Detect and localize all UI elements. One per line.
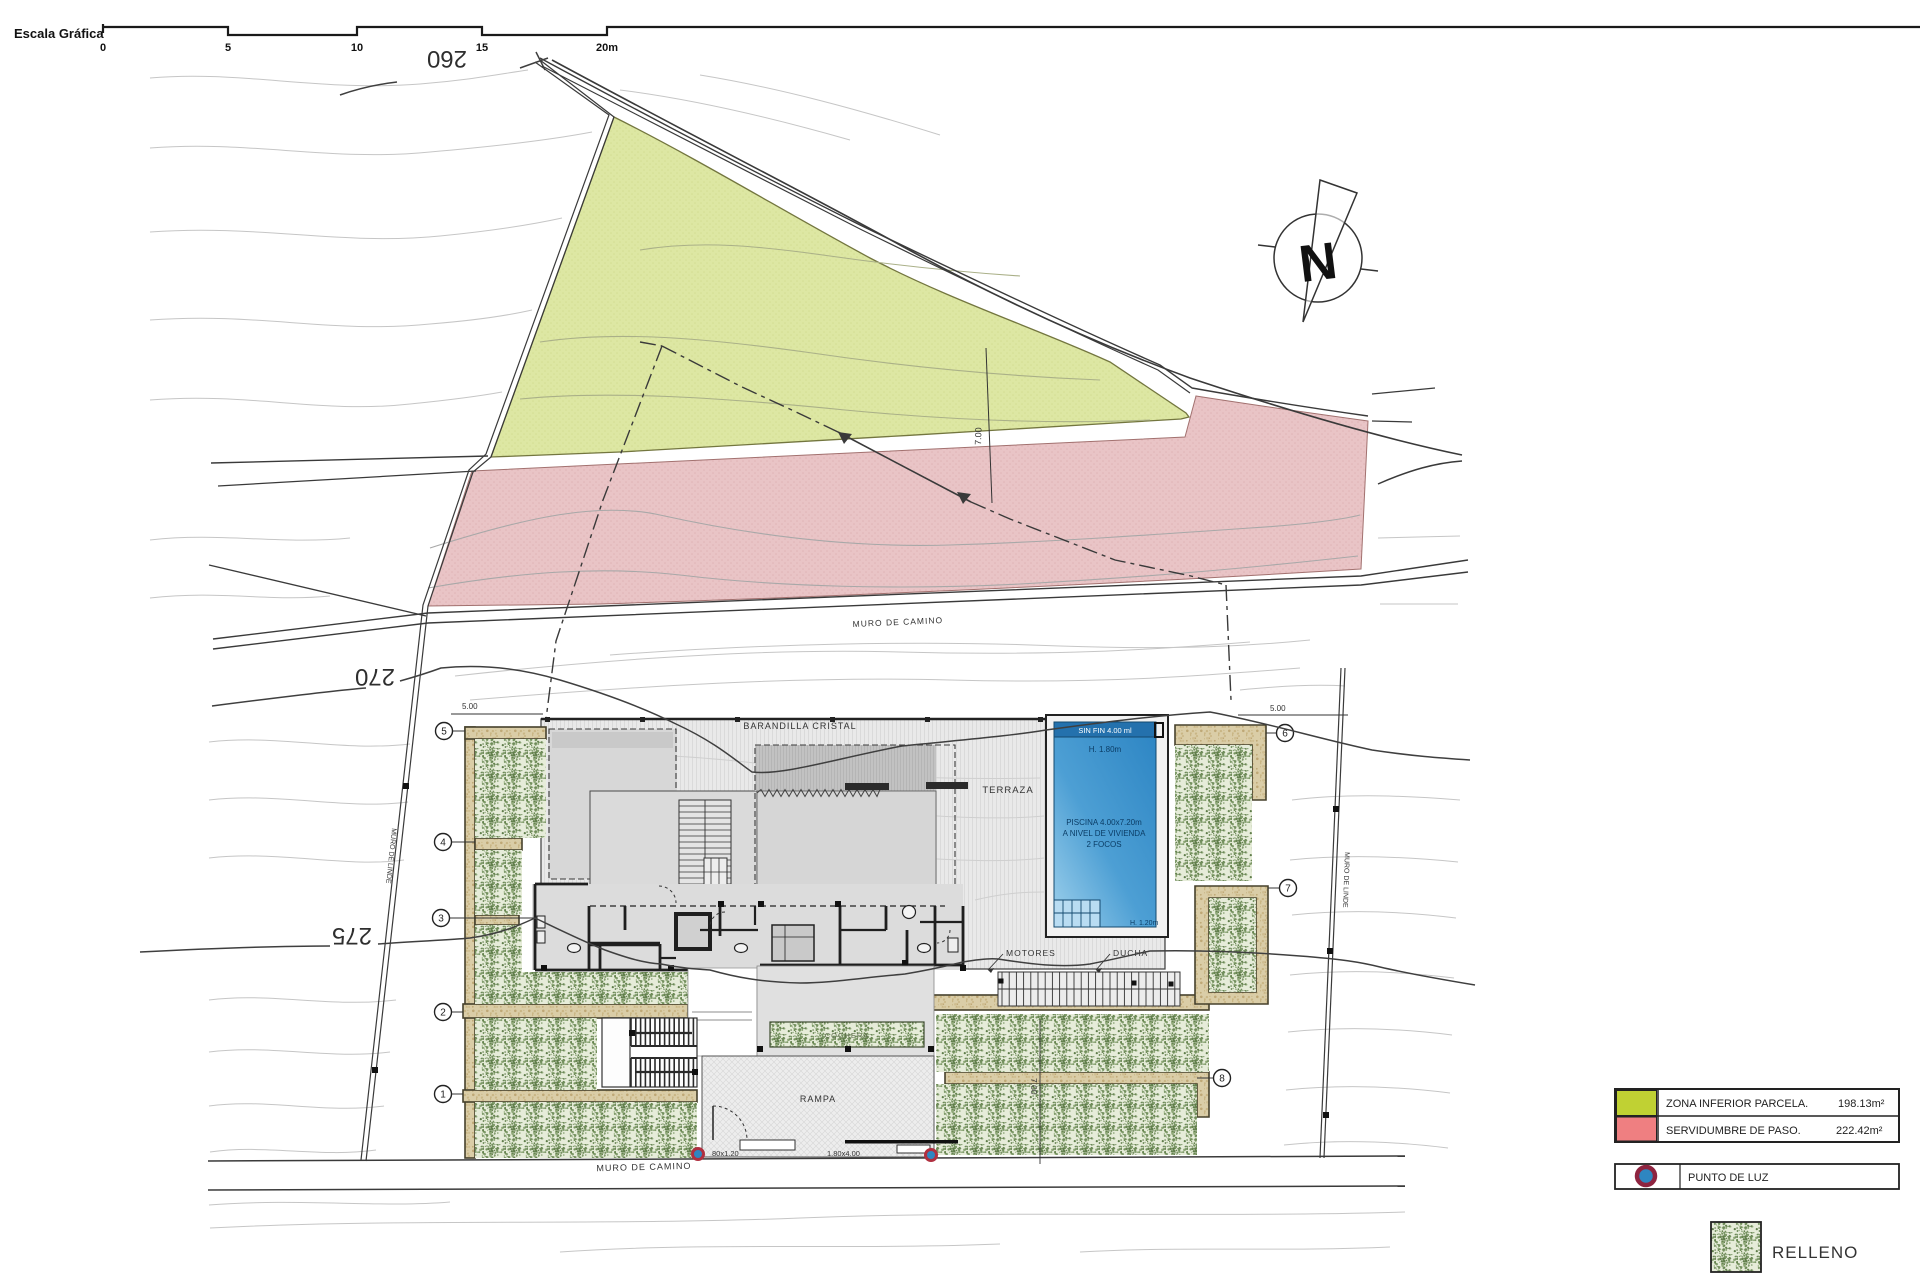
svg-text:COCHERA: COCHERA: [825, 1031, 870, 1040]
svg-text:H. 1.20m: H. 1.20m: [1130, 920, 1159, 927]
svg-text:Escala Gráfica: Escala Gráfica: [14, 26, 104, 41]
svg-text:N: N: [1296, 232, 1340, 294]
svg-text:1.80x4.00: 1.80x4.00: [827, 1149, 860, 1158]
svg-text:198.13m²: 198.13m²: [1838, 1098, 1885, 1110]
svg-text:SERVIDUMBRE DE PASO.: SERVIDUMBRE DE PASO.: [1666, 1125, 1801, 1137]
svg-text:7: 7: [1285, 884, 1291, 895]
svg-text:80x1.20: 80x1.20: [712, 1149, 739, 1158]
svg-text:5.00: 5.00: [462, 702, 478, 711]
svg-text:222.42m²: 222.42m²: [1836, 1125, 1883, 1137]
svg-text:260: 260: [427, 45, 467, 72]
svg-text:0: 0: [100, 42, 106, 54]
svg-text:275: 275: [332, 922, 372, 949]
svg-text:4: 4: [440, 838, 446, 849]
svg-text:MOTORES: MOTORES: [1006, 948, 1056, 958]
svg-text:RELLENO: RELLENO: [1772, 1243, 1858, 1262]
svg-text:2: 2: [440, 1008, 446, 1019]
svg-text:270: 270: [355, 663, 395, 690]
svg-text:BARANDILLA CRISTAL: BARANDILLA CRISTAL: [743, 721, 856, 731]
svg-text:H. 1.80m: H. 1.80m: [1089, 745, 1122, 754]
svg-text:TERRAZA: TERRAZA: [982, 785, 1033, 796]
svg-text:8: 8: [1219, 1074, 1225, 1085]
svg-text:2 FOCOS: 2 FOCOS: [1086, 840, 1121, 849]
svg-text:5: 5: [441, 727, 447, 738]
svg-text:1: 1: [440, 1090, 446, 1101]
svg-text:7.00: 7.00: [973, 427, 984, 445]
svg-text:RAMPA: RAMPA: [800, 1094, 836, 1104]
svg-text:SIN FIN 4.00 ml: SIN FIN 4.00 ml: [1078, 726, 1132, 735]
svg-text:PUNTO DE LUZ: PUNTO DE LUZ: [1688, 1172, 1769, 1184]
svg-text:5.00: 5.00: [1270, 704, 1286, 713]
svg-text:A NIVEL DE VIVIENDA: A NIVEL DE VIVIENDA: [1063, 829, 1147, 838]
svg-text:7.00: 7.00: [1029, 1078, 1039, 1095]
svg-text:ZONA INFERIOR PARCELA.: ZONA INFERIOR PARCELA.: [1666, 1098, 1808, 1110]
svg-text:15: 15: [476, 42, 488, 54]
svg-text:20m: 20m: [596, 42, 618, 54]
svg-text:10: 10: [351, 42, 363, 54]
svg-text:3: 3: [438, 914, 444, 925]
svg-text:5: 5: [225, 42, 231, 54]
svg-text:PISCINA 4.00x7.20m: PISCINA 4.00x7.20m: [1066, 818, 1142, 827]
